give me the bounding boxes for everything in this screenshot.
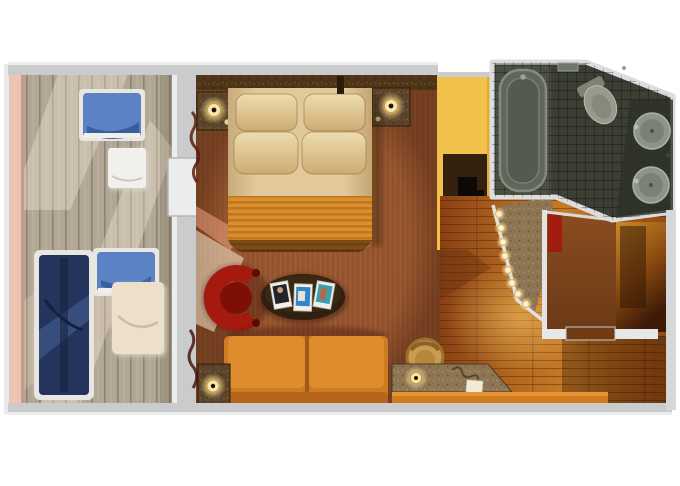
sink-basin-bottom [633, 167, 669, 203]
sofa [224, 326, 388, 406]
sink-basin-top [634, 113, 671, 149]
entry-wall-left [542, 329, 567, 339]
right-wall [666, 210, 676, 410]
deck-wall-shadow [160, 74, 174, 406]
red-armchair [202, 264, 270, 332]
top-wall [8, 64, 438, 75]
balcony-lounger [34, 250, 94, 400]
balcony [4, 64, 174, 414]
coffee-table [260, 274, 348, 324]
magazines [270, 281, 335, 312]
railing-inner-line [21, 68, 24, 412]
floor-plan-stage [0, 0, 680, 486]
armchair-seat [220, 282, 252, 314]
balcony-chair-top [79, 89, 145, 141]
bathroom [492, 62, 673, 220]
bed [228, 76, 382, 252]
balcony-table-top [108, 148, 148, 190]
bed-foot-shadow [228, 240, 372, 252]
bedroom-living [189, 74, 440, 406]
sofa-cushion [309, 336, 384, 388]
closet-red-garment [548, 214, 562, 252]
entry-door [566, 327, 615, 340]
nightstand-left [197, 92, 233, 130]
soap-item [666, 153, 671, 158]
closet-wall [542, 210, 547, 336]
sofa-cushion [228, 336, 305, 388]
entry-area [542, 210, 668, 340]
floor-plan [0, 0, 680, 486]
entry-wall-right [614, 329, 658, 339]
bathtub [500, 70, 546, 191]
shower-shelf [558, 63, 578, 71]
telephone [465, 379, 483, 393]
side-table [198, 364, 230, 406]
balcony-table-bottom [112, 282, 166, 356]
